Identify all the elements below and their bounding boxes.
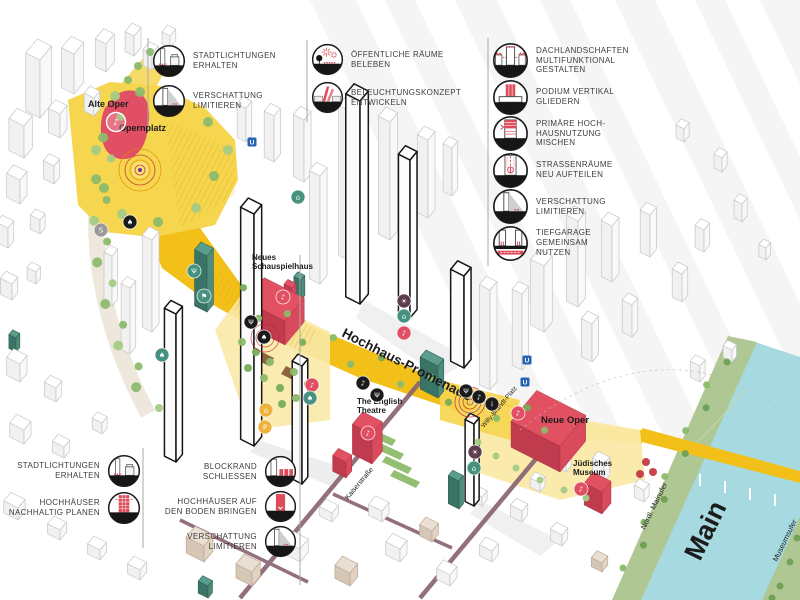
ubahn-icon: U xyxy=(521,378,530,387)
svg-text:Ψ: Ψ xyxy=(463,388,469,396)
svg-text:⌂: ⌂ xyxy=(472,465,476,473)
badge-tree-icon: ♠ xyxy=(257,330,271,344)
badge-dining-icon: Ψ xyxy=(244,315,258,329)
svg-text:S: S xyxy=(99,227,104,235)
ubahn-icon: U xyxy=(248,138,257,147)
svg-text:Ψ: Ψ xyxy=(248,319,254,327)
svg-text:⚑: ⚑ xyxy=(201,293,207,301)
badge-garden-icon: ♠ xyxy=(155,348,169,362)
svg-text:⌂: ⌂ xyxy=(264,407,268,415)
badge-lamp-icon: ☀ xyxy=(397,294,411,308)
badge-shop-icon: ⌂ xyxy=(467,461,481,475)
badge-music-icon: ♪ xyxy=(472,390,486,404)
svg-text:♪: ♪ xyxy=(366,430,370,438)
svg-text:☀: ☀ xyxy=(472,449,478,457)
svg-text:♠: ♠ xyxy=(307,395,313,403)
svg-text:⌂: ⌂ xyxy=(296,194,300,202)
map-label-neues-schauspielhaus: NeuesSchauspielhaus xyxy=(252,253,313,271)
badge-dining-icon: Ψ xyxy=(459,384,473,398)
badge-garden-icon: ♠ xyxy=(303,391,317,405)
svg-text:☀: ☀ xyxy=(401,298,407,306)
badge-dining-icon: Ψ xyxy=(370,388,384,402)
svg-text:i: i xyxy=(491,401,493,409)
badge-cafe-icon: Ψ xyxy=(187,264,201,278)
masterplan-map: Alte OperOpernplatzNeuesSchauspielhausHo… xyxy=(0,0,800,600)
svg-text:♪: ♪ xyxy=(281,294,285,302)
masterplan-canvas: Alte OperOpernplatzNeuesSchauspielhausHo… xyxy=(0,0,800,600)
svg-text:P: P xyxy=(263,424,267,432)
badge-market-icon: ⌂ xyxy=(259,403,273,417)
svg-text:♪: ♪ xyxy=(113,118,119,128)
map-label-opernplatz: Opernplatz xyxy=(119,123,167,133)
badge-shop-icon: ⌂ xyxy=(397,309,411,323)
badge-kiosk-icon: ⌂ xyxy=(291,190,305,204)
svg-text:U: U xyxy=(250,139,255,146)
svg-text:♪: ♪ xyxy=(516,410,520,418)
badge-tree-icon: ♠ xyxy=(123,215,137,229)
svg-text:♠: ♠ xyxy=(127,219,133,227)
svg-text:♠: ♠ xyxy=(159,352,165,360)
svg-text:♪: ♪ xyxy=(579,486,583,494)
badge-music-icon: ♪ xyxy=(397,326,411,340)
badge-music-icon: ♪ xyxy=(511,406,525,420)
map-label-alte-oper: Alte Oper xyxy=(88,99,129,109)
badge-sbahn-icon: S xyxy=(94,223,108,237)
svg-text:Ψ: Ψ xyxy=(191,268,197,276)
badge-music-icon: ♪ xyxy=(276,290,290,304)
badge-flag-icon: ⚑ xyxy=(197,289,211,303)
map-label-neue-oper: Neue Oper xyxy=(541,415,589,426)
badge-music-icon: ♪ xyxy=(361,426,375,440)
badge-music-icon: ♪ xyxy=(305,378,319,392)
badge-music-icon: ♪ xyxy=(107,113,126,132)
svg-text:U: U xyxy=(525,357,530,364)
svg-text:⌂: ⌂ xyxy=(402,313,406,321)
svg-text:♪: ♪ xyxy=(361,380,365,388)
svg-text:♪: ♪ xyxy=(477,394,481,402)
badge-music-icon: ♪ xyxy=(356,376,370,390)
svg-text:♪: ♪ xyxy=(402,330,406,338)
svg-text:Ψ: Ψ xyxy=(374,392,380,400)
badge-parking-icon: P xyxy=(258,420,272,434)
badge-music-icon: ♪ xyxy=(574,482,588,496)
badge-lamp-icon: ☀ xyxy=(468,445,482,459)
svg-text:♠: ♠ xyxy=(261,334,267,342)
ubahn-icon: U xyxy=(523,356,532,365)
svg-text:U: U xyxy=(523,379,528,386)
svg-text:♪: ♪ xyxy=(310,382,314,390)
badge-info-icon: i xyxy=(485,397,499,411)
